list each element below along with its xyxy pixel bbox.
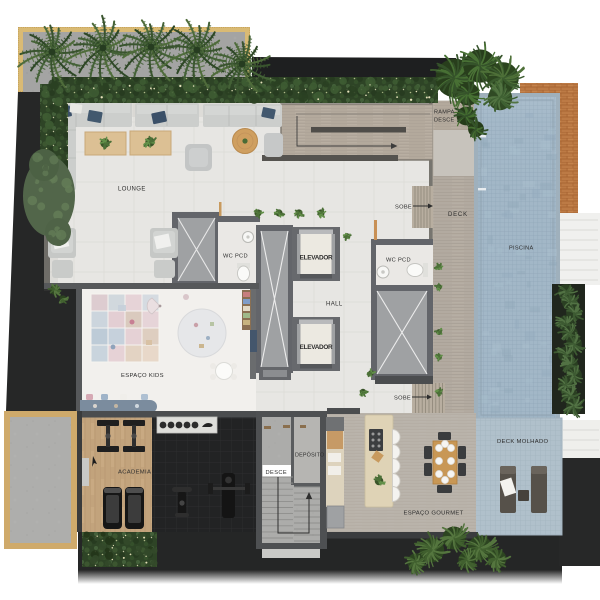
svg-text:DECK: DECK [448, 212, 468, 218]
svg-text:ELEVADOR: ELEVADOR [300, 344, 333, 351]
svg-text:HALL: HALL [326, 302, 343, 308]
svg-text:ESPAÇO KIDS: ESPAÇO KIDS [121, 373, 164, 379]
svg-text:PISCINA: PISCINA [509, 246, 533, 252]
svg-text:ELEVADOR: ELEVADOR [300, 255, 333, 262]
svg-text:WC PCD: WC PCD [223, 254, 248, 260]
svg-text:SOBE: SOBE [395, 205, 412, 211]
svg-text:SOBE: SOBE [394, 396, 411, 402]
svg-text:ACADEMIA: ACADEMIA [118, 470, 151, 476]
svg-text:DECK MOLHADO: DECK MOLHADO [497, 439, 549, 445]
svg-text:DESCE: DESCE [266, 470, 288, 476]
svg-text:DEPÓSITO: DEPÓSITO [295, 452, 324, 459]
svg-text:LOUNGE: LOUNGE [118, 187, 146, 193]
svg-text:DESCE: DESCE [434, 118, 454, 124]
svg-text:ESPAÇO GOURMET: ESPAÇO GOURMET [404, 511, 464, 517]
svg-text:RAMPA: RAMPA [434, 110, 455, 116]
svg-text:WC PCD: WC PCD [386, 258, 411, 264]
